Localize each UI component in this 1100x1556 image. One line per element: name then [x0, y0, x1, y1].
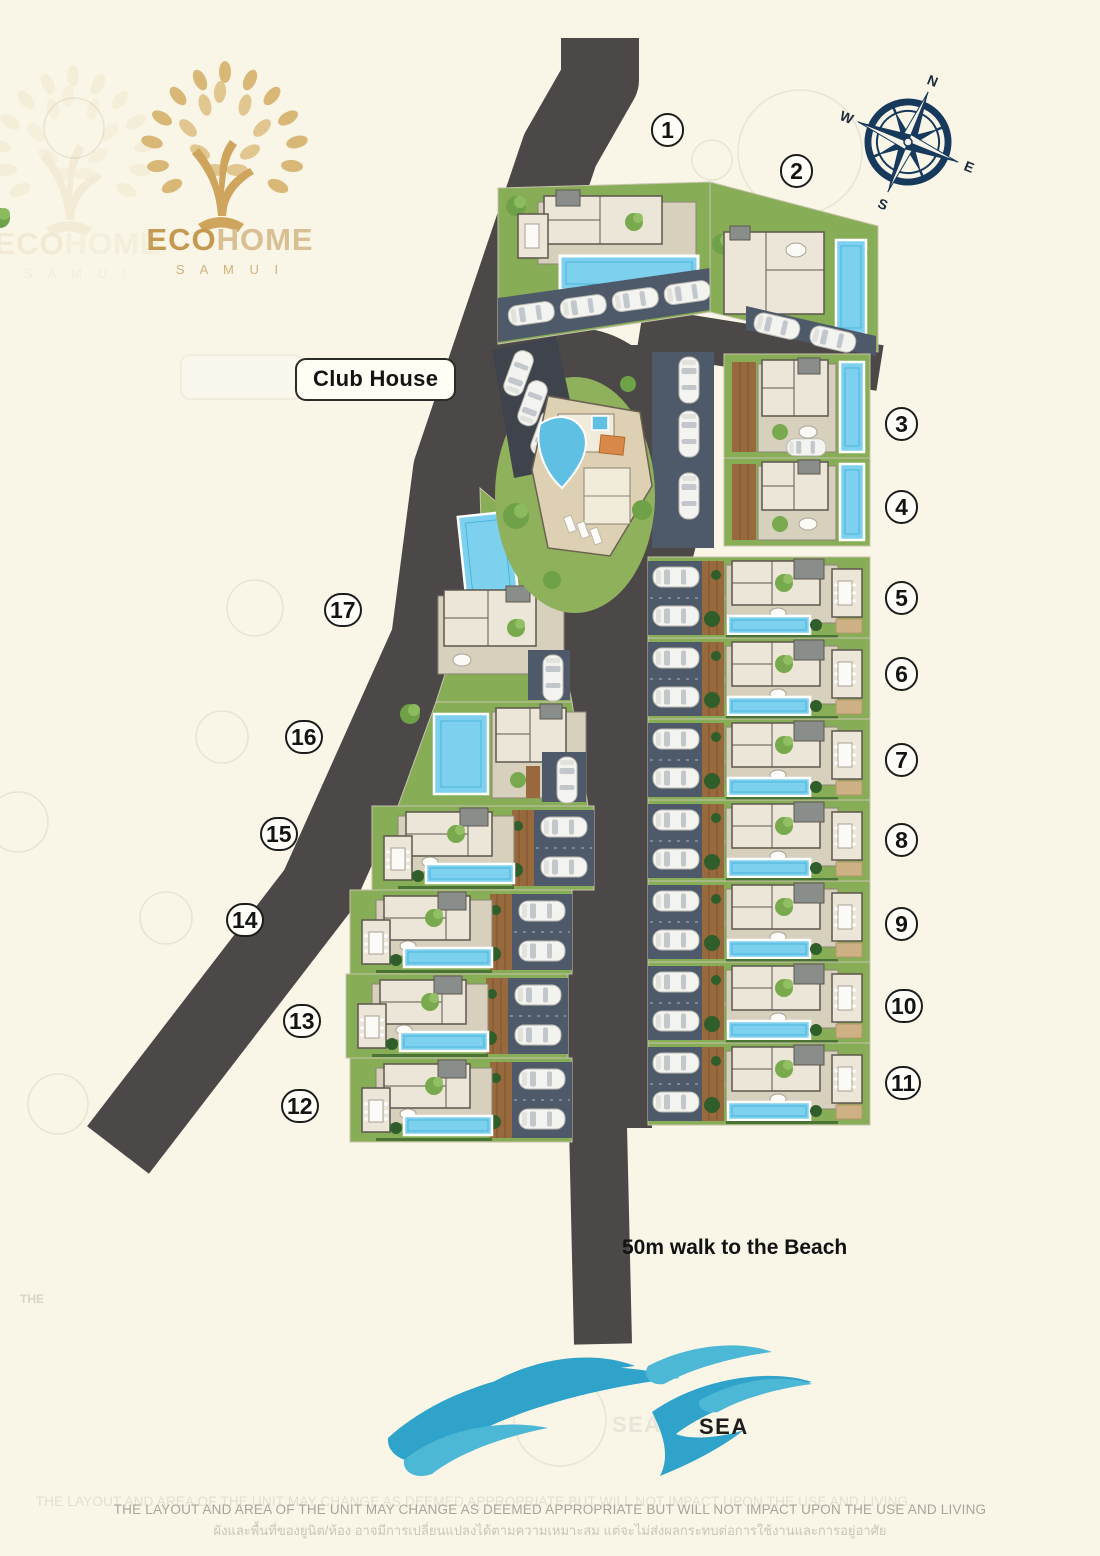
sea-label: SEA: [699, 1414, 749, 1440]
plot-marker-2[interactable]: 2: [780, 154, 813, 188]
villa-plot-7: [648, 719, 870, 801]
plot-marker-1[interactable]: 1: [651, 113, 684, 147]
plot-marker-3[interactable]: 3: [885, 407, 918, 441]
logo-wordmark: ECOHOME: [146, 222, 313, 257]
villa-plot-1: [0, 182, 711, 344]
plot-marker-6[interactable]: 6: [885, 657, 918, 691]
plot-marker-12[interactable]: 12: [281, 1089, 319, 1123]
sea-waves-icon: [388, 1345, 812, 1476]
roadside-cars: [679, 357, 699, 519]
beach-note-label: 50m walk to the Beach: [622, 1236, 847, 1260]
sea-label-ghost: SEA: [612, 1412, 662, 1438]
compass-rose-icon: N E S W: [813, 46, 1002, 238]
club-house-label[interactable]: Club House: [295, 358, 456, 401]
logo: ECOHOME S A M U I: [140, 61, 314, 277]
plot-marker-13[interactable]: 13: [283, 1004, 321, 1038]
logo-text-home: HOME: [217, 222, 314, 257]
plot-marker-10[interactable]: 10: [885, 989, 923, 1023]
club-house-area: [492, 336, 655, 613]
pool: [840, 464, 864, 540]
logo-subtitle: S A M U I: [176, 262, 284, 277]
villa-plot-9: [648, 881, 870, 963]
disclaimer-line-th: ผังและพื้นที่ของยูนิต/ห้อง อาจมีการเปลี่…: [0, 1520, 1100, 1541]
beach-road: [598, 1126, 603, 1344]
plot-marker-16[interactable]: 16: [285, 720, 323, 754]
logo-watermark: [0, 65, 162, 281]
logo-tree-icon: [140, 61, 309, 232]
villa-plot-8: [648, 800, 870, 882]
plot-marker-17[interactable]: 17: [324, 593, 362, 627]
villa-plot-3: [724, 354, 870, 460]
plot-marker-15[interactable]: 15: [260, 817, 298, 851]
plot-marker-9[interactable]: 9: [885, 907, 918, 941]
plot-marker-7[interactable]: 7: [885, 743, 918, 777]
villa-plot-6: [648, 638, 870, 720]
villa-plot-5: [648, 557, 870, 639]
villa-plot-15: [372, 806, 594, 890]
plot-marker-14[interactable]: 14: [226, 903, 264, 937]
pool: [840, 362, 864, 452]
compass-w-label: W: [838, 107, 857, 127]
compass-n-label: N: [925, 71, 940, 90]
siteplan-graphic: ECOHOME S A M U I N E S W: [0, 0, 1100, 1556]
faint-watermark-text: THE: [20, 1292, 44, 1306]
villa-plot-12: [350, 1058, 572, 1142]
siteplan-page: ECOHOME S A M U I N E S W: [0, 0, 1100, 1556]
villa-plot-11: [648, 1043, 870, 1125]
disclaimer-line-en: THE LAYOUT AND AREA OF THE UNIT MAY CHAN…: [0, 1502, 1100, 1517]
villa-plots: [0, 182, 878, 1142]
plot-marker-5[interactable]: 5: [885, 581, 918, 615]
plot-marker-4[interactable]: 4: [885, 490, 918, 524]
pool: [434, 714, 488, 794]
villa-plot-4: [724, 458, 870, 546]
villa-plot-13: [346, 974, 568, 1058]
compass-s-label: S: [876, 195, 891, 213]
plot-marker-8[interactable]: 8: [885, 823, 918, 857]
villa-plot-14: [350, 890, 572, 974]
villa-plot-10: [648, 962, 870, 1044]
plot-marker-11[interactable]: 11: [885, 1066, 921, 1100]
club-house-label-ghost: [180, 354, 304, 400]
compass-e-label: E: [962, 158, 977, 176]
